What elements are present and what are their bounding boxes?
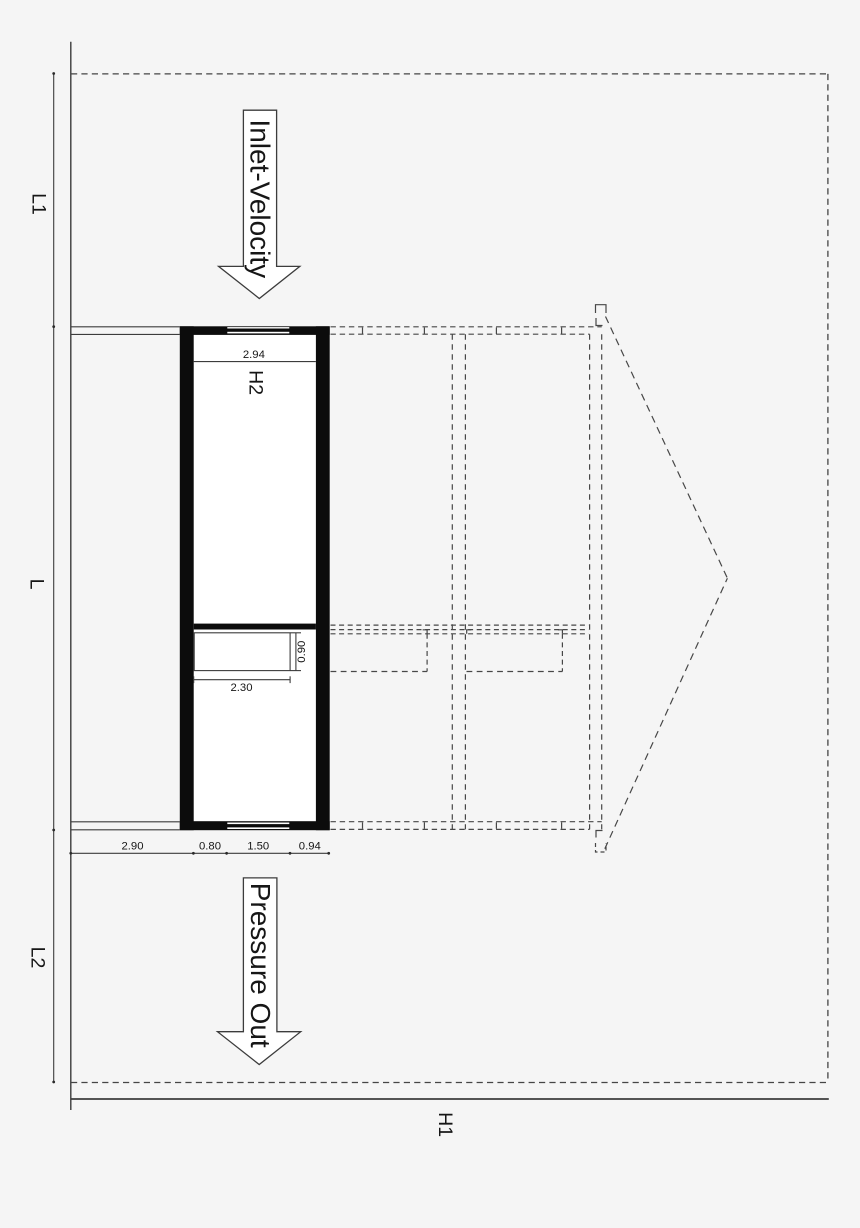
svg-text:0.80: 0.80 — [199, 840, 221, 852]
svg-text:2.94: 2.94 — [243, 349, 265, 361]
svg-text:Inlet-Velocity: Inlet-Velocity — [245, 119, 276, 278]
svg-text:2.90: 2.90 — [122, 840, 144, 852]
svg-text:L: L — [26, 579, 48, 590]
svg-text:L1: L1 — [28, 193, 50, 215]
svg-text:H1: H1 — [434, 1112, 456, 1137]
svg-text:2.30: 2.30 — [231, 682, 253, 694]
svg-text:L2: L2 — [27, 947, 49, 969]
svg-text:H2: H2 — [245, 370, 267, 395]
svg-text:0.94: 0.94 — [299, 840, 321, 852]
svg-text:1.50: 1.50 — [247, 840, 269, 852]
svg-text:0.90: 0.90 — [296, 641, 308, 663]
svg-text:Pressure Out: Pressure Out — [245, 883, 276, 1048]
